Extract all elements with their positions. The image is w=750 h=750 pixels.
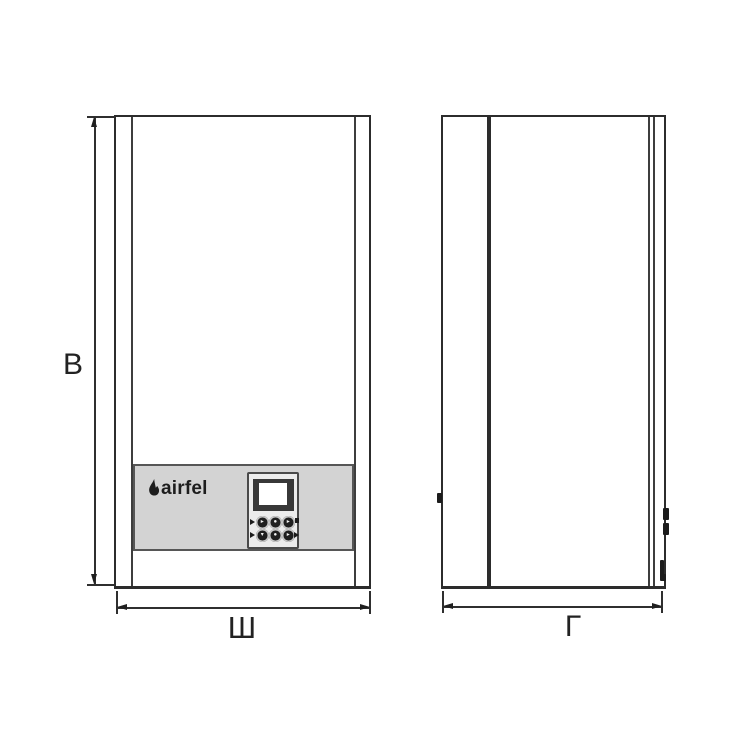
panel-button-glyph: ▾ [261,532,264,538]
depth-witness-left [442,591,444,613]
width-witness-left [116,591,118,614]
arrowhead-right-icon [360,604,370,610]
panel-button: ▸ [282,529,295,542]
height-dimension-label: В [58,350,88,380]
brand-logo: airfel [148,477,208,499]
panel-button-glyph: ● [273,519,277,525]
width-witness-right [369,591,371,614]
side-back-line-1 [648,117,650,586]
arrow-mark-icon [250,519,255,525]
panel-button: ● [269,529,282,542]
panel-button: ▸ [282,516,295,529]
arrow-mark-icon [294,532,299,538]
arrowhead-up-icon [91,117,97,127]
control-panel: airfel ▸ ● ▸ ▾ ● ▸ [133,464,354,551]
technical-drawing: airfel ▸ ● ▸ ▾ ● ▸ В Ш [0,0,750,750]
depth-dimension-label: Г [553,612,593,642]
flame-icon [148,479,160,498]
arrowhead-left-icon [117,604,127,610]
lcd-screen [253,479,294,511]
side-right-connector [663,508,669,520]
arrowhead-left-icon [443,603,453,609]
width-dimension-line [118,607,370,609]
panel-button-glyph: ● [273,532,277,538]
side-back-line-2 [653,117,655,586]
height-dimension-line [94,118,96,584]
side-front-panel-line [487,117,491,586]
width-dimension-label: Ш [222,612,262,643]
square-mark-icon [295,518,299,523]
panel-button: ▾ [256,529,269,542]
arrowhead-down-icon [91,574,97,584]
arrow-mark-icon [250,532,255,538]
panel-button: ▸ [256,516,269,529]
brand-logo-text: airfel [161,479,208,498]
panel-button-glyph: ▸ [287,532,290,538]
side-right-connector [663,523,669,535]
front-right-inner-line [354,117,356,586]
side-left-connector [437,493,442,503]
arrowhead-right-icon [652,603,662,609]
display-module: ▸ ● ▸ ▾ ● ▸ [247,472,299,549]
height-witness-bottom [87,584,115,586]
panel-button-glyph: ▸ [287,519,290,525]
panel-button-glyph: ▸ [261,519,264,525]
side-view-outline [441,115,666,589]
panel-button: ● [269,516,282,529]
side-right-bracket-foot [660,574,666,581]
depth-dimension-line [443,606,662,608]
depth-witness-right [661,591,663,613]
